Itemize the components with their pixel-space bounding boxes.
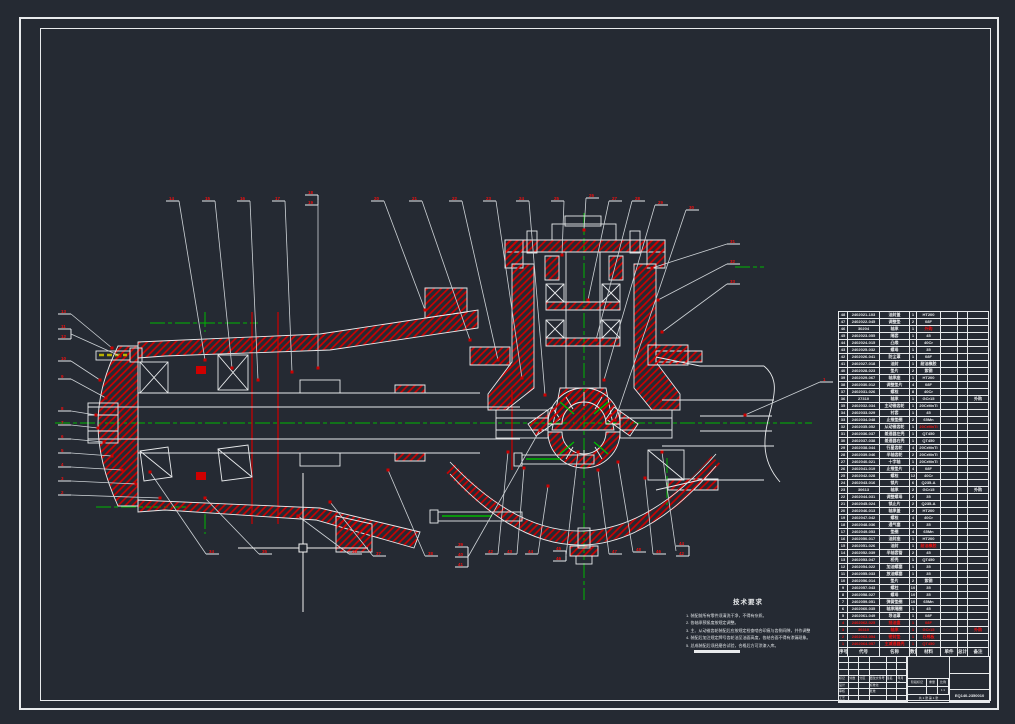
- bom-cell: [941, 382, 958, 388]
- callout-number: 4: [61, 462, 64, 467]
- callout-number: 10: [61, 356, 67, 361]
- bom-cell: 20: [839, 508, 848, 514]
- bom-cell: 2: [910, 578, 917, 584]
- callout-number: 45: [556, 546, 562, 551]
- callout-number: 21: [412, 196, 418, 201]
- bom-cell: 35: [917, 494, 941, 500]
- bom-row: 372402031-026螺栓840Cr: [839, 389, 989, 396]
- bom-cell: 1: [839, 641, 848, 647]
- bom-cell: [941, 564, 958, 570]
- callout-number: 26: [589, 193, 595, 198]
- bom-cell: 2402031-026: [848, 389, 880, 395]
- bom-cell: 24: [839, 480, 848, 486]
- bom-cell: 2: [910, 417, 917, 423]
- callout-number: 2: [61, 490, 64, 495]
- bom-cell: 1: [910, 431, 917, 437]
- bom-cell: 2: [839, 634, 848, 640]
- bom-cell: [941, 529, 958, 535]
- bom-cell: [968, 382, 989, 388]
- bom-cell: [941, 389, 958, 395]
- bom-cell: [941, 452, 958, 458]
- bom-cell: [958, 368, 968, 374]
- bom-cell: 08F: [917, 613, 941, 619]
- bom-header-total-weight: 总计: [958, 648, 968, 656]
- bom-cell: 39: [839, 375, 848, 381]
- bom-cell: 2402046-013: [848, 508, 880, 514]
- bom-cell: 主减速器壳: [880, 641, 910, 647]
- bom-cell: [958, 634, 968, 640]
- bom-cell: [958, 606, 968, 612]
- bom-cell: [968, 354, 989, 360]
- bom-cell: [968, 368, 989, 374]
- bom-cell: 2402052-039: [848, 550, 880, 556]
- bom-cell: [958, 410, 968, 416]
- bom-row: 282402039-046半轴齿轮220CrMnTi: [839, 452, 989, 459]
- bom-cell: 2402060-035: [848, 606, 880, 612]
- bom-row: 12402064-057主减速器壳1QT450: [839, 641, 989, 648]
- bom-cell: [958, 508, 968, 514]
- bom-cell: [958, 522, 968, 528]
- bom-row: 272402040-021十字轴120CrMnTi: [839, 459, 989, 466]
- bom-cell: 11: [839, 571, 848, 577]
- bom-cell: [941, 634, 958, 640]
- bom-cell: 2: [910, 319, 917, 325]
- bom-cell: [941, 375, 958, 381]
- bom-row: 472402022-045调整垫208F: [839, 319, 989, 326]
- bom-row: 182402048-036通气塞135: [839, 522, 989, 529]
- bom-cell: [968, 501, 989, 507]
- bom-cell: [968, 375, 989, 381]
- bom-cell: [958, 312, 968, 318]
- bom-cell: 螺栓: [880, 473, 910, 479]
- bom-row: 92402057-043螺柱1035: [839, 585, 989, 592]
- bom-cell: [958, 501, 968, 507]
- bom-cell: [968, 620, 989, 626]
- bom-row: 112402055-033放油螺塞135: [839, 571, 989, 578]
- bom-cell: [958, 592, 968, 598]
- bom-cell: 调整垫片: [880, 382, 910, 388]
- bom-cell: 垫片: [880, 368, 910, 374]
- bom-cell: [958, 564, 968, 570]
- bom-cell: [941, 326, 958, 332]
- bom-cell: 桥壳: [880, 557, 910, 563]
- bom-cell: [941, 515, 958, 521]
- bom-cell: 17: [839, 529, 848, 535]
- bom-cell: [958, 557, 968, 563]
- scale-label: 比例: [938, 679, 949, 686]
- callout-number: 35: [262, 549, 268, 554]
- bom-cell: 29: [839, 445, 848, 451]
- bom-cell: 防尘罩: [880, 354, 910, 360]
- bom-cell: 2402023-055: [848, 333, 880, 339]
- bom-cell: 2402053-047: [848, 557, 880, 563]
- bom-cell: [941, 522, 958, 528]
- callout-number: 25: [554, 196, 560, 201]
- callout-number: 14: [169, 196, 175, 201]
- notes-title: 技术要求: [686, 596, 810, 606]
- callout-number: 34: [209, 549, 215, 554]
- bom-cell: 1: [910, 459, 917, 465]
- bom-cell: [968, 473, 989, 479]
- bom-row: 352402032-034主动锥齿轮120CrMnTi: [839, 403, 989, 410]
- bom-cell: [958, 438, 968, 444]
- bom-row: 412402027-018油封1耐油橡胶: [839, 361, 989, 368]
- bom-cell: 1: [910, 438, 917, 444]
- bom-cell: 5: [839, 613, 848, 619]
- bom-cell: 1: [910, 312, 917, 318]
- bom-cell: [958, 627, 968, 633]
- bom-cell: 36: [839, 396, 848, 402]
- bom-cell: 47: [839, 319, 848, 325]
- bom-cell: 14: [839, 550, 848, 556]
- bom-row: 482402021-103油封盖1HT200: [839, 312, 989, 319]
- bom-cell: 2402049-053: [848, 529, 880, 535]
- bom-cell: [941, 438, 958, 444]
- bom-cell: 30613: [848, 487, 880, 493]
- bom-cell: 7: [839, 599, 848, 605]
- bom-cell: 耐油橡胶: [917, 543, 941, 549]
- bom-cell: [941, 627, 958, 633]
- bom-row: 302402037-038差速器右壳1QT450: [839, 438, 989, 445]
- bom-cell: [968, 508, 989, 514]
- bom-cell: [941, 571, 958, 577]
- bom-cell: [968, 515, 989, 521]
- bom-cell: 油封: [880, 361, 910, 367]
- bom-cell: [958, 613, 968, 619]
- bom-cell: [941, 599, 958, 605]
- bom-cell: [958, 480, 968, 486]
- bom-cell: [941, 410, 958, 416]
- bom-row: 332402034-048止推垫圈265Mn: [839, 417, 989, 424]
- callout-number: 33: [730, 279, 736, 284]
- bom-cell: 12: [910, 473, 917, 479]
- bom-cell: 2402021-103: [848, 312, 880, 318]
- stage-mark-label: 阶段标记: [908, 679, 927, 686]
- bom-cell: [941, 445, 958, 451]
- bom-cell: 19: [839, 515, 848, 521]
- bom-cell: 34: [839, 410, 848, 416]
- bom-cell: 1: [910, 424, 917, 430]
- bom-row: 142402052-039半轴套管245: [839, 550, 989, 557]
- bom-cell: 2402054-022: [848, 564, 880, 570]
- bom-cell: 2402059-051: [848, 599, 880, 605]
- bom-cell: [968, 571, 989, 577]
- bom-cell: HT200: [917, 312, 941, 318]
- bom-cell: 油封盖: [880, 312, 910, 318]
- weight-value: [927, 687, 938, 694]
- bom-cell: [958, 424, 968, 430]
- bom-cell: 40: [839, 368, 848, 374]
- bom-cell: 30204: [848, 326, 880, 332]
- bom-cell: [968, 522, 989, 528]
- callout-number: 24: [519, 196, 525, 201]
- bom-cell: 2402063-054: [848, 634, 880, 640]
- bom-cell: 32: [839, 424, 848, 430]
- bom-cell: 十字轴: [880, 459, 910, 465]
- bom-row: 312402036-037差速器左壳1QT450: [839, 431, 989, 438]
- bom-cell: 2402038-044: [848, 445, 880, 451]
- bom-cell: [958, 620, 968, 626]
- bom-row: 132402053-047桥壳1QT450: [839, 557, 989, 564]
- bom-cell: 凸缘: [880, 340, 910, 346]
- callout-number: 38: [428, 551, 434, 556]
- bom-row: 212402045-024锁止片2Q235-A: [839, 501, 989, 508]
- bom-row: 442402024-015凸缘140Cr: [839, 340, 989, 347]
- bom-cell: [941, 347, 958, 353]
- bom-cell: 45: [917, 550, 941, 556]
- bom-cell: 导油罩: [880, 613, 910, 619]
- callout-number: 18: [308, 190, 314, 195]
- bom-cell: 油封座: [880, 536, 910, 542]
- bom-cell: 10: [839, 578, 848, 584]
- bom-cell: [958, 487, 968, 493]
- bom-cell: [968, 333, 989, 339]
- bom-cell: [968, 543, 989, 549]
- bom-cell: [958, 452, 968, 458]
- bom-cell: QT450: [917, 557, 941, 563]
- bom-row: 402402028-023垫片2紫铜: [839, 368, 989, 375]
- callout-number: 23: [486, 196, 492, 201]
- bom-cell: 1: [910, 606, 917, 612]
- bom-cell: [941, 340, 958, 346]
- bom-cell: 9: [839, 585, 848, 591]
- bom-cell: [968, 319, 989, 325]
- bom-row: 342402033-029衬套145: [839, 410, 989, 417]
- bom-cell: 37: [839, 389, 848, 395]
- bom-cell: [968, 459, 989, 465]
- bom-cell: 轴承座: [880, 375, 910, 381]
- bom-cell: 45: [917, 333, 941, 339]
- callout-number: 48: [636, 547, 642, 552]
- bom-row: 122402054-022加油螺塞135: [839, 564, 989, 571]
- bom-cell: [941, 557, 958, 563]
- bom-row: 62402060-035轴承隔圈145: [839, 606, 989, 613]
- title-block-cell: [897, 696, 907, 702]
- bom-row: 102402056-014垫片2紫铜: [839, 578, 989, 585]
- callout-number: 31: [730, 239, 736, 244]
- callout-number: 28: [635, 196, 641, 201]
- bom-cell: 45: [839, 333, 848, 339]
- title-block-name-cell: [908, 657, 949, 679]
- bom-cell: 行星齿轮: [880, 445, 910, 451]
- bom-cell: [958, 536, 968, 542]
- bom-cell: 20CrMnTi: [917, 445, 941, 451]
- bom-cell: 41: [839, 361, 848, 367]
- bom-cell: [958, 543, 968, 549]
- bom-cell: 33: [839, 417, 848, 423]
- bom-cell: [968, 592, 989, 598]
- bom-cell: 2402036-037: [848, 431, 880, 437]
- bom-cell: 27310: [848, 396, 880, 402]
- bom-cell: [968, 494, 989, 500]
- bom-cell: 2402058-027: [848, 592, 880, 598]
- callout-number: 42: [488, 549, 494, 554]
- bom-cell: 23: [839, 487, 848, 493]
- bom-cell: 35: [917, 571, 941, 577]
- bom-cell: [968, 529, 989, 535]
- bom-cell: 65Mn: [917, 529, 941, 535]
- bom-cell: 2402024-015: [848, 340, 880, 346]
- callout-number: 42: [679, 551, 685, 556]
- sheet-count: 共 1 张 第 1 张: [908, 695, 949, 702]
- bom-cell: GCr15: [917, 396, 941, 402]
- bom-cell: [968, 431, 989, 437]
- bom-cell: 1: [910, 361, 917, 367]
- bom-cell: 22: [839, 494, 848, 500]
- bom-row: 52402061-049导油罩108F: [839, 613, 989, 620]
- bom-cell: [958, 494, 968, 500]
- bom-cell: 35: [917, 585, 941, 591]
- bom-row: 42402062-025挡油盘108F: [839, 620, 989, 627]
- bom-cell: [968, 438, 989, 444]
- callout-number: 44: [679, 541, 685, 546]
- bom-cell: [958, 599, 968, 605]
- bom-cell: 1: [910, 410, 917, 416]
- bom-cell: 1: [910, 333, 917, 339]
- callout-number: 41: [458, 562, 464, 567]
- bom-cell: [968, 466, 989, 472]
- bom-cell: 2402047-042: [848, 515, 880, 521]
- bom-cell: 1: [910, 557, 917, 563]
- bom-cell: 1: [910, 571, 917, 577]
- bom-cell: 螺栓: [880, 515, 910, 521]
- callout-number: 39: [458, 542, 464, 547]
- bom-cell: 1: [910, 613, 917, 619]
- bom-cell: [941, 354, 958, 360]
- bom-cell: 08F: [917, 354, 941, 360]
- bom-cell: 密封垫: [880, 634, 910, 640]
- bom-cell: 40Cr: [917, 515, 941, 521]
- bom-cell: 加油螺塞: [880, 564, 910, 570]
- bom-cell: 1: [910, 326, 917, 332]
- bom-table[interactable]: 482402021-103油封盖1HT200472402022-045调整垫20…: [838, 311, 989, 657]
- callout-number: 19: [308, 200, 314, 205]
- bom-row: 382402030-012调整垫片408F: [839, 382, 989, 389]
- bom-cell: 轴承盖: [880, 508, 910, 514]
- bom-cell: [941, 333, 958, 339]
- bom-cell: [968, 480, 989, 486]
- bom-cell: 外购: [968, 487, 989, 493]
- bom-cell: 轴承: [880, 326, 910, 332]
- bom-cell: 65Mn: [917, 599, 941, 605]
- notes-item: 1. 装配前所有零件须清洗干净，不得有杂质。: [686, 612, 810, 619]
- bom-rows: 482402021-103油封盖1HT200472402022-045调整垫20…: [839, 312, 989, 648]
- bom-cell: [941, 431, 958, 437]
- bom-row: 4630204轴承1外购: [839, 326, 989, 333]
- bom-cell: 31: [839, 431, 848, 437]
- bom-header-name: 名称: [880, 648, 910, 656]
- bom-cell: 2402030-012: [848, 382, 880, 388]
- callout-number: 40: [458, 552, 464, 557]
- bom-cell: 弹簧垫圈: [880, 599, 910, 605]
- bom-cell: 2402056-014: [848, 578, 880, 584]
- bom-cell: 28: [839, 452, 848, 458]
- bom-cell: 2: [910, 501, 917, 507]
- bom-cell: [958, 459, 968, 465]
- bom-cell: [958, 319, 968, 325]
- bom-cell: 2402025-032: [848, 347, 880, 353]
- callout-number: 6: [61, 434, 64, 439]
- callout-number: 1: [823, 377, 826, 382]
- bom-cell: 通气塞: [880, 522, 910, 528]
- bom-cell: HT200: [917, 536, 941, 542]
- callout-number: 32: [730, 259, 736, 264]
- bom-cell: 42: [839, 354, 848, 360]
- bom-row: 432402025-032螺母135: [839, 347, 989, 354]
- bom-cell: [941, 396, 958, 402]
- callout-number: 46: [656, 549, 662, 554]
- bom-row: 72402059-051弹簧垫圈1065Mn: [839, 599, 989, 606]
- bom-cell: 止推垫圈: [880, 417, 910, 423]
- bom-cell: 螺母: [880, 592, 910, 598]
- bom-cell: [968, 452, 989, 458]
- bom-cell: 08F: [917, 620, 941, 626]
- notes-list: 1. 装配前所有零件须清洗干净，不得有杂质。2. 各轴承预紧度按规定调整。3. …: [686, 612, 810, 649]
- bom-cell: [968, 340, 989, 346]
- callout-number: 15: [205, 196, 211, 201]
- bom-cell: 30310: [848, 627, 880, 633]
- bom-cell: QT450: [917, 641, 941, 647]
- bom-cell: 26: [839, 466, 848, 472]
- bom-cell: 2402057-043: [848, 585, 880, 591]
- bom-header-material: 材料: [917, 648, 941, 656]
- bom-cell: 2402043-016: [848, 480, 880, 486]
- bom-cell: 2: [910, 368, 917, 374]
- bom-header-code: 代号: [848, 648, 880, 656]
- bom-cell: QT450: [917, 431, 941, 437]
- bom-cell: [958, 515, 968, 521]
- bom-row: 172402049-053垫圈465Mn: [839, 529, 989, 536]
- bom-cell: [958, 340, 968, 346]
- bom-cell: [941, 473, 958, 479]
- bom-cell: 2402026-041: [848, 354, 880, 360]
- callout-number: 30: [689, 205, 695, 210]
- title-block[interactable]: 标记处数分区更改文件号签名年月日设计标准化审核批准工艺 阶段标记 重量 比例 1…: [838, 656, 990, 703]
- callout-number: 11: [61, 324, 66, 329]
- title-block-middle: 阶段标记 重量 比例 1:1 共 1 张 第 1 张: [907, 657, 949, 702]
- bom-cell: 半轴套管: [880, 550, 910, 556]
- bom-cell: [968, 564, 989, 570]
- bom-cell: 10: [910, 585, 917, 591]
- notes-highlight-bar: [694, 650, 740, 653]
- bom-cell: 衬套: [880, 410, 910, 416]
- bom-cell: 3: [839, 627, 848, 633]
- bom-cell: 4: [910, 466, 917, 472]
- bom-cell: [958, 578, 968, 584]
- bom-cell: [968, 326, 989, 332]
- bom-cell: HT200: [917, 508, 941, 514]
- scale-value: 1:1: [938, 687, 949, 694]
- bom-cell: 2402051-026: [848, 543, 880, 549]
- bom-cell: 1: [910, 634, 917, 640]
- bom-cell: 2: [910, 508, 917, 514]
- title-block-cell: [849, 696, 859, 702]
- bom-cell: Q235-A: [917, 480, 941, 486]
- bom-cell: [958, 326, 968, 332]
- bom-cell: [941, 480, 958, 486]
- bom-row: 202402046-013轴承盖2HT200: [839, 508, 989, 515]
- bom-cell: 轴承: [880, 487, 910, 493]
- bom-row: 330310轴承1GCr15外购: [839, 627, 989, 634]
- bom-cell: 27: [839, 459, 848, 465]
- callout-number: 17: [275, 196, 281, 201]
- bom-cell: 1: [910, 403, 917, 409]
- bom-cell: 螺柱: [880, 585, 910, 591]
- bom-cell: [958, 403, 968, 409]
- stage-mark-value: [908, 687, 927, 694]
- bom-row: 222402044-031调整螺母235: [839, 494, 989, 501]
- bom-cell: 锁止片: [880, 501, 910, 507]
